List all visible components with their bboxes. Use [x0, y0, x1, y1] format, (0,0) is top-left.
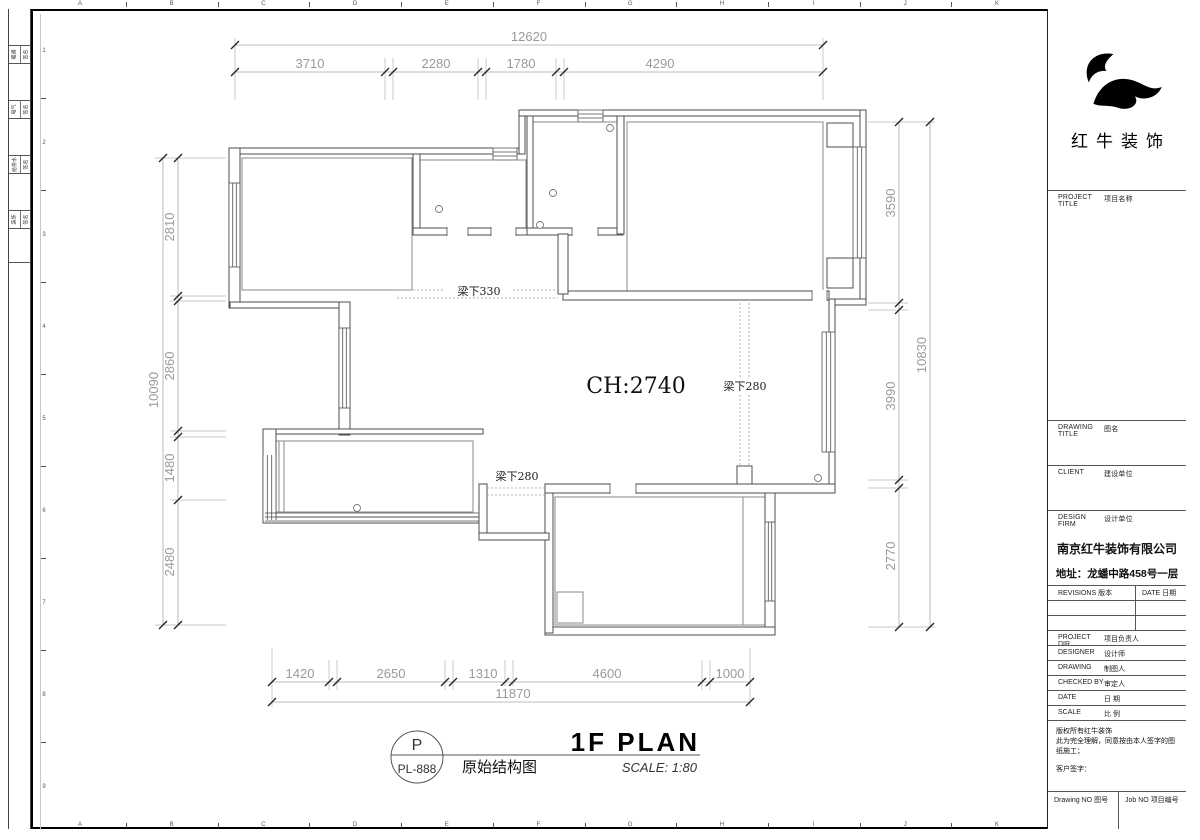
- drawing-title-label-en: DRAWING TITLE: [1058, 424, 1104, 438]
- dimensions-bottom: 1420 2650 1310 4600 1000 11870: [268, 648, 754, 707]
- ceiling-height-label: CH:2740: [586, 374, 685, 399]
- designer-row: DESIGNER设计师: [1048, 645, 1186, 660]
- job-no-label-cn: 项目编号: [1151, 797, 1179, 804]
- project-dir-row: PROJECT DIR项目负责人: [1048, 630, 1186, 645]
- svg-text:2650: 2650: [377, 666, 406, 681]
- bull-logo-icon: [1072, 39, 1164, 119]
- revisions-table: REVISIONS 版本 DATE 日期: [1048, 585, 1186, 630]
- notes-line1: 版权所有红牛装饰: [1056, 727, 1180, 737]
- beam-330-label: 梁下330: [458, 284, 501, 298]
- plan-title-cn: 原始结构图: [462, 758, 537, 776]
- client-label-en: CLIENT: [1058, 469, 1104, 479]
- drawing-row: DRAWING制图人: [1048, 660, 1186, 675]
- revisions-label-cn: 版本: [1098, 590, 1112, 597]
- date-row: DATE日 期: [1048, 690, 1186, 705]
- revisions-label-en: REVISIONS: [1058, 590, 1096, 597]
- svg-text:1000: 1000: [716, 666, 745, 681]
- door-openings: [447, 227, 827, 494]
- svg-text:2770: 2770: [883, 542, 898, 571]
- svg-text:3990: 3990: [883, 382, 898, 411]
- svg-text:1780: 1780: [507, 56, 536, 71]
- floor-plan: 梁下330 梁下280 梁下280 CH:2740: [0, 0, 1047, 840]
- plan-scale-note: SCALE: 1:80: [622, 760, 698, 775]
- drawing-title-label-cn: 图名: [1104, 424, 1118, 438]
- drawing-no-label-cn: 图号: [1094, 797, 1108, 804]
- client-signature-label: 客户签字：: [1056, 765, 1180, 775]
- beam-280-left-label: 梁下280: [496, 469, 539, 483]
- svg-text:3710: 3710: [296, 56, 325, 71]
- dimensions-right: 3590 3990 2770 10830: [868, 118, 935, 631]
- svg-text:1420: 1420: [286, 666, 315, 681]
- design-firm-label-en: DESIGN FIRM: [1058, 514, 1104, 528]
- svg-text:2480: 2480: [162, 548, 177, 577]
- title-bubble-code: PL-888: [398, 762, 437, 776]
- svg-text:2280: 2280: [422, 56, 451, 71]
- svg-text:2810: 2810: [162, 213, 177, 242]
- drawing-no-label-en: Drawing NO: [1054, 797, 1092, 804]
- title-block: 红牛装饰 PROJECT TITLE项目名称 DRAWING TITLE图名 C…: [1047, 9, 1185, 829]
- svg-text:3590: 3590: [883, 189, 898, 218]
- drawing-sheet: 暖通 签名 电气 签名 给排水 签名 装饰 签名 AABBCCDDEEFFGGH…: [0, 0, 1200, 840]
- svg-text:12620: 12620: [511, 29, 547, 44]
- design-firm-label-cn: 设计单位: [1104, 514, 1133, 528]
- client-section: CLIENT建设单位: [1048, 465, 1186, 510]
- scale-row: SCALE比 例: [1048, 705, 1186, 720]
- svg-text:10830: 10830: [914, 337, 929, 373]
- firm-name: 南京红牛装饰有限公司: [1048, 540, 1186, 557]
- job-no-label-en: Job NO: [1125, 797, 1149, 804]
- svg-text:11870: 11870: [495, 686, 530, 701]
- rev-date-label-en: DATE: [1142, 590, 1160, 597]
- title-bubble-letter: P: [412, 737, 423, 754]
- company-logo-text: 红牛装饰: [1048, 127, 1186, 152]
- firm-address: 地址：龙蟠中路458号一层: [1048, 566, 1186, 581]
- project-title-label-en: PROJECT TITLE: [1058, 194, 1104, 208]
- revisions-header-row: REVISIONS 版本 DATE 日期: [1048, 585, 1186, 600]
- notes-line2: 此为完全理解，同意按由本人签字的图纸施工；: [1056, 737, 1180, 757]
- drawing-title-group: P PL-888 1F PLAN 原始结构图 SCALE: 1:80: [391, 727, 700, 783]
- svg-text:10090: 10090: [146, 372, 161, 408]
- revisions-empty-row: [1048, 615, 1186, 630]
- svg-text:1310: 1310: [469, 666, 498, 681]
- design-firm-section: DESIGN FIRM设计单位 南京红牛装饰有限公司 地址：龙蟠中路458号一层: [1048, 510, 1186, 585]
- copyright-notes: 版权所有红牛装饰 此为完全理解，同意按由本人签字的图纸施工； 客户签字：: [1048, 720, 1186, 791]
- fixture-circles: [354, 125, 822, 512]
- client-label-cn: 建设单位: [1104, 469, 1133, 479]
- dimensions-top: 12620 3710 2280 1780 4290: [231, 29, 827, 100]
- project-title-section: PROJECT TITLE项目名称: [1048, 190, 1186, 420]
- dimensions-left: 10090 2810 2860 1480 2480: [146, 154, 226, 629]
- project-title-label-cn: 项目名称: [1104, 194, 1133, 208]
- rev-date-label-cn: 日期: [1162, 590, 1176, 597]
- svg-text:2860: 2860: [162, 352, 177, 381]
- svg-text:4600: 4600: [593, 666, 622, 681]
- svg-text:1480: 1480: [162, 454, 177, 483]
- svg-text:4290: 4290: [646, 56, 675, 71]
- drawing-number-row: Drawing NO 图号 Job NO 项目编号: [1048, 791, 1186, 829]
- checked-by-row: CHECKED BY审定人: [1048, 675, 1186, 690]
- logo-section: 红牛装饰: [1048, 9, 1186, 190]
- plan-title-en: 1F PLAN: [571, 727, 700, 757]
- revisions-empty-row: [1048, 600, 1186, 615]
- beam-280-right-label: 梁下280: [724, 379, 767, 393]
- drawing-title-section: DRAWING TITLE图名: [1048, 420, 1186, 465]
